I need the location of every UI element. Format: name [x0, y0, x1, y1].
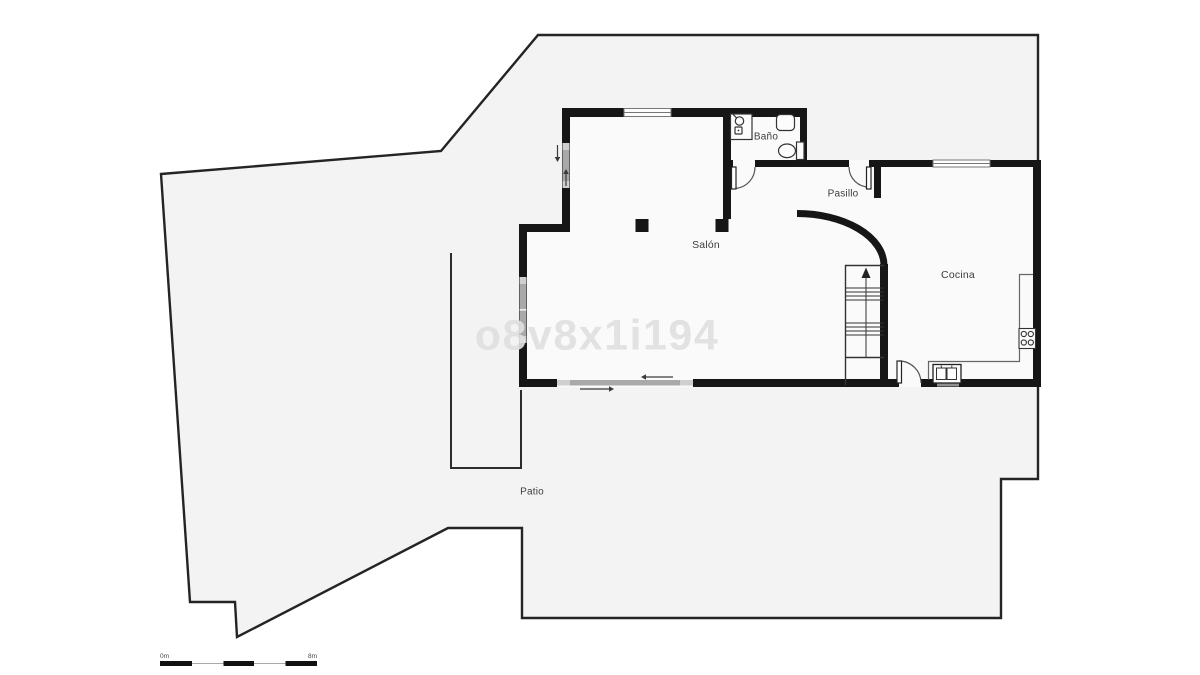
room-label-patio: Patio — [520, 487, 544, 498]
bathroom-sink-icon — [777, 115, 795, 131]
wall-right-cocina — [1033, 160, 1041, 387]
wall-north-d — [990, 160, 1041, 167]
wall-bano-left — [723, 108, 731, 219]
room-label-cocina: Cocina — [941, 269, 975, 281]
room-label-salon: Salón — [692, 239, 720, 251]
wall-top-salon — [562, 108, 807, 117]
wall-bottom-b — [693, 379, 899, 387]
pillar-right — [716, 219, 729, 232]
kitchen-sink-icon — [933, 365, 961, 387]
wall-bottom-a — [519, 379, 557, 387]
scale-start-label: 0m — [160, 653, 169, 660]
stove-icon — [1019, 329, 1036, 349]
wall-pasillo-stub — [874, 160, 881, 198]
wall-stair-right — [880, 264, 888, 387]
toilet-icon — [779, 142, 805, 160]
room-label-pasillo: Pasillo — [828, 189, 859, 200]
shower-icon — [731, 114, 753, 140]
scale-bar: 0m 8m — [160, 653, 317, 666]
pillar-left — [636, 219, 649, 232]
scale-end-label: 8m — [308, 653, 317, 660]
room-label-bano: Baño — [754, 132, 778, 143]
sliding-door-bottom — [557, 380, 693, 386]
watermark-text: o8v8x1i194 — [475, 312, 720, 361]
floor-plan-page: 0m 8m Baño Pasillo Salón Cocina Patio o8… — [0, 0, 1200, 675]
